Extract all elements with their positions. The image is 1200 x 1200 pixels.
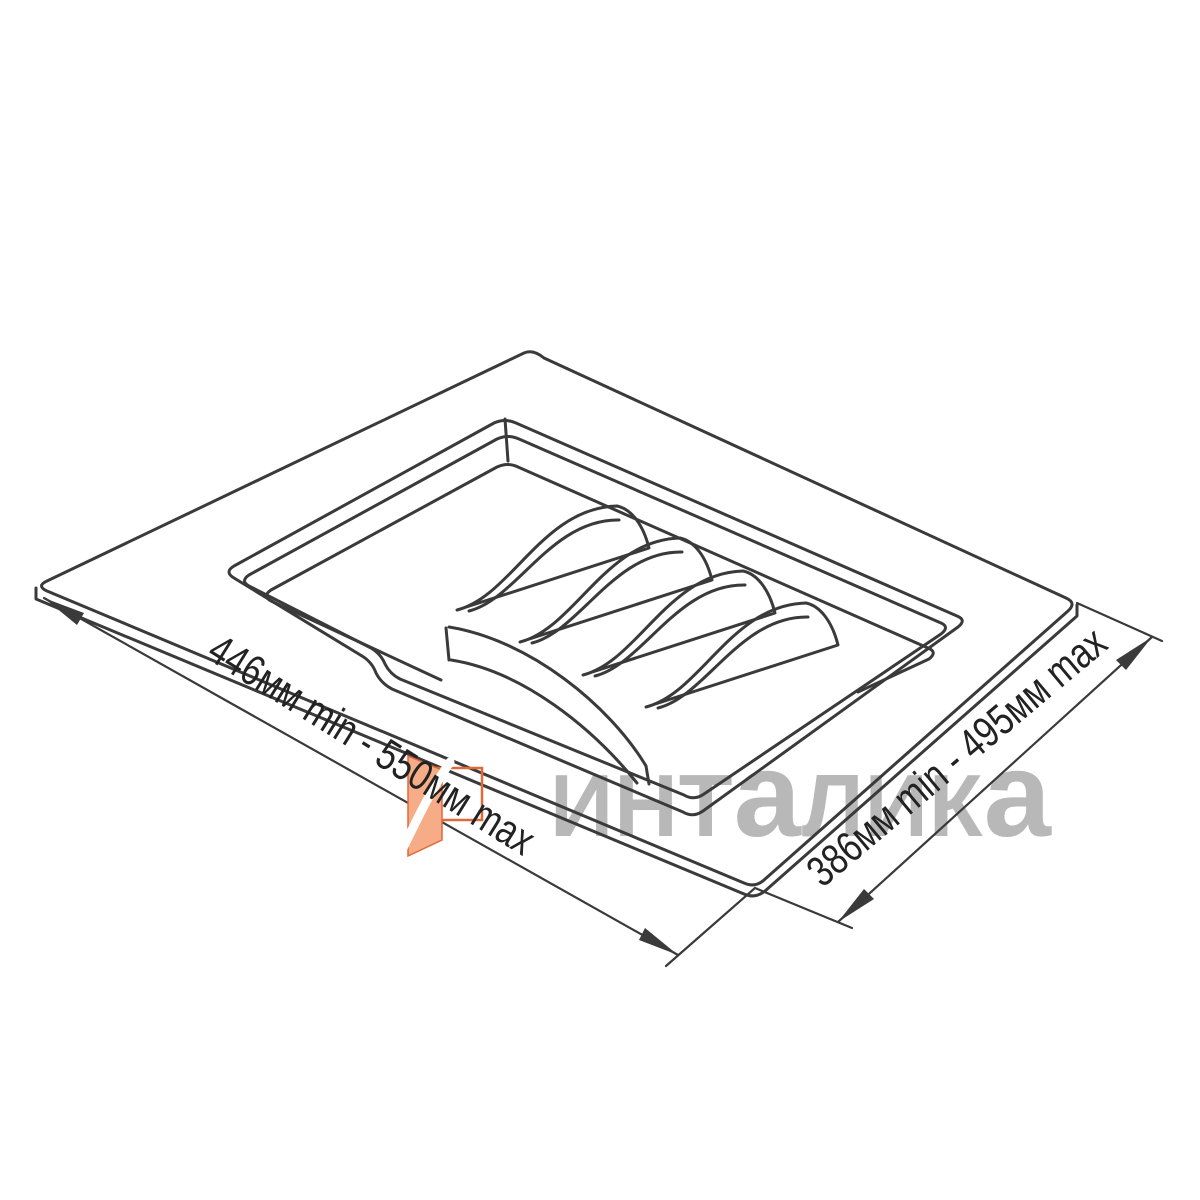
fin-3: [583, 571, 775, 675]
dimension-width-extension-line: [666, 888, 755, 966]
cutlery-tray-technical-drawing: ИНТаЛИКа: [0, 0, 1200, 1200]
technical-drawing-page: ИНТаЛИКа: [0, 0, 1200, 1200]
dimension-depth-extension-line-bottom: [755, 888, 852, 928]
fin-4: [646, 603, 838, 707]
plate-divider-fins: [457, 506, 838, 708]
dimension-depth-arrowhead-bottom: [838, 889, 874, 922]
dimension-width-label: 446мм min - 550мм max: [200, 625, 544, 865]
fin-1: [457, 506, 649, 610]
back-corner-vertical-edge: [505, 419, 508, 461]
front-divider-fin: [446, 627, 649, 784]
dimension-width-arrowhead-right: [639, 928, 678, 955]
dimension-width-arrowhead-left: [44, 598, 84, 625]
front-fin-top-edge: [449, 627, 646, 766]
fin-2: [520, 538, 712, 642]
front-fin-left-end-face: [446, 628, 449, 660]
dimension-depth-arrowhead-top: [1116, 637, 1152, 670]
